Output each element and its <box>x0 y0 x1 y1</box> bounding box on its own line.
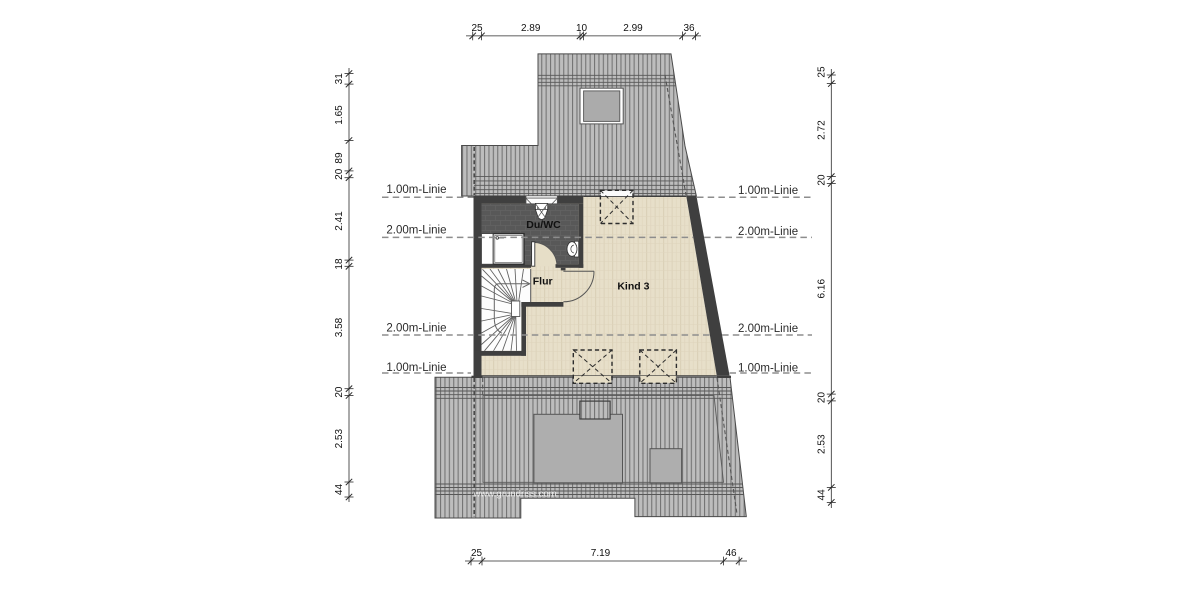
svg-text:1.00m-Linie: 1.00m-Linie <box>738 185 798 197</box>
svg-text:3.58: 3.58 <box>334 317 345 337</box>
svg-text:36: 36 <box>683 23 695 34</box>
svg-text:20: 20 <box>334 386 345 398</box>
svg-text:2.00m-Linie: 2.00m-Linie <box>386 323 446 335</box>
svg-text:20: 20 <box>816 174 827 186</box>
svg-text:2.00m-Linie: 2.00m-Linie <box>738 226 798 238</box>
svg-text:2.00m-Linie: 2.00m-Linie <box>738 323 798 335</box>
svg-text:1.00m-Linie: 1.00m-Linie <box>386 362 446 374</box>
svg-text:18: 18 <box>334 258 345 270</box>
svg-text:2.53: 2.53 <box>334 429 345 449</box>
svg-text:1.00m-Linie: 1.00m-Linie <box>738 363 798 375</box>
svg-text:2.53: 2.53 <box>816 434 827 454</box>
svg-text:2.72: 2.72 <box>816 120 827 140</box>
svg-text:7.19: 7.19 <box>591 548 611 559</box>
svg-text:25: 25 <box>471 23 483 34</box>
svg-text:1.00m-Linie: 1.00m-Linie <box>386 184 446 196</box>
svg-text:46: 46 <box>725 548 737 559</box>
svg-text:31: 31 <box>334 73 345 85</box>
svg-text:2.99: 2.99 <box>623 23 643 34</box>
svg-text:Kind 3: Kind 3 <box>617 281 649 293</box>
svg-text:89: 89 <box>334 152 345 164</box>
svg-text:20: 20 <box>334 168 345 180</box>
svg-text:2.41: 2.41 <box>334 211 345 231</box>
svg-text:25: 25 <box>816 66 827 78</box>
svg-text:2.89: 2.89 <box>521 23 541 34</box>
svg-text:Du/WC: Du/WC <box>526 219 561 231</box>
svg-text:Flur: Flur <box>533 276 553 288</box>
svg-text:1.65: 1.65 <box>334 105 345 125</box>
svg-text:25: 25 <box>471 548 483 559</box>
svg-text:6.16: 6.16 <box>816 279 827 299</box>
svg-text:2.00m-Linie: 2.00m-Linie <box>386 225 446 237</box>
svg-text:20: 20 <box>816 392 827 404</box>
svg-text:10: 10 <box>576 23 588 34</box>
svg-text:www.grundriss.com: www.grundriss.com <box>473 489 557 500</box>
svg-text:44: 44 <box>816 489 827 501</box>
svg-text:44: 44 <box>334 484 345 496</box>
